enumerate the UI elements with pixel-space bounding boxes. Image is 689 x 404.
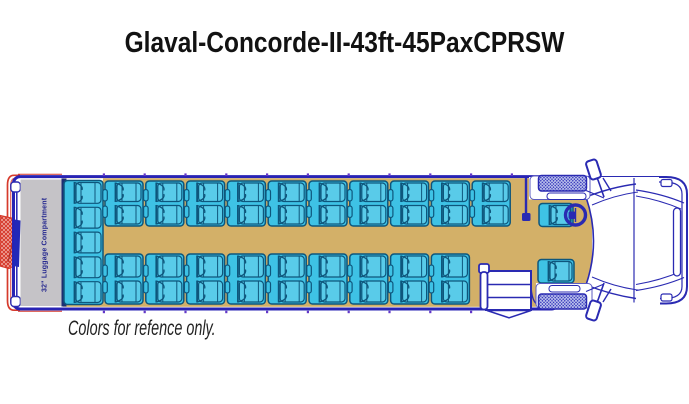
svg-text:32" Luggage Compartment: 32" Luggage Compartment <box>42 197 49 292</box>
